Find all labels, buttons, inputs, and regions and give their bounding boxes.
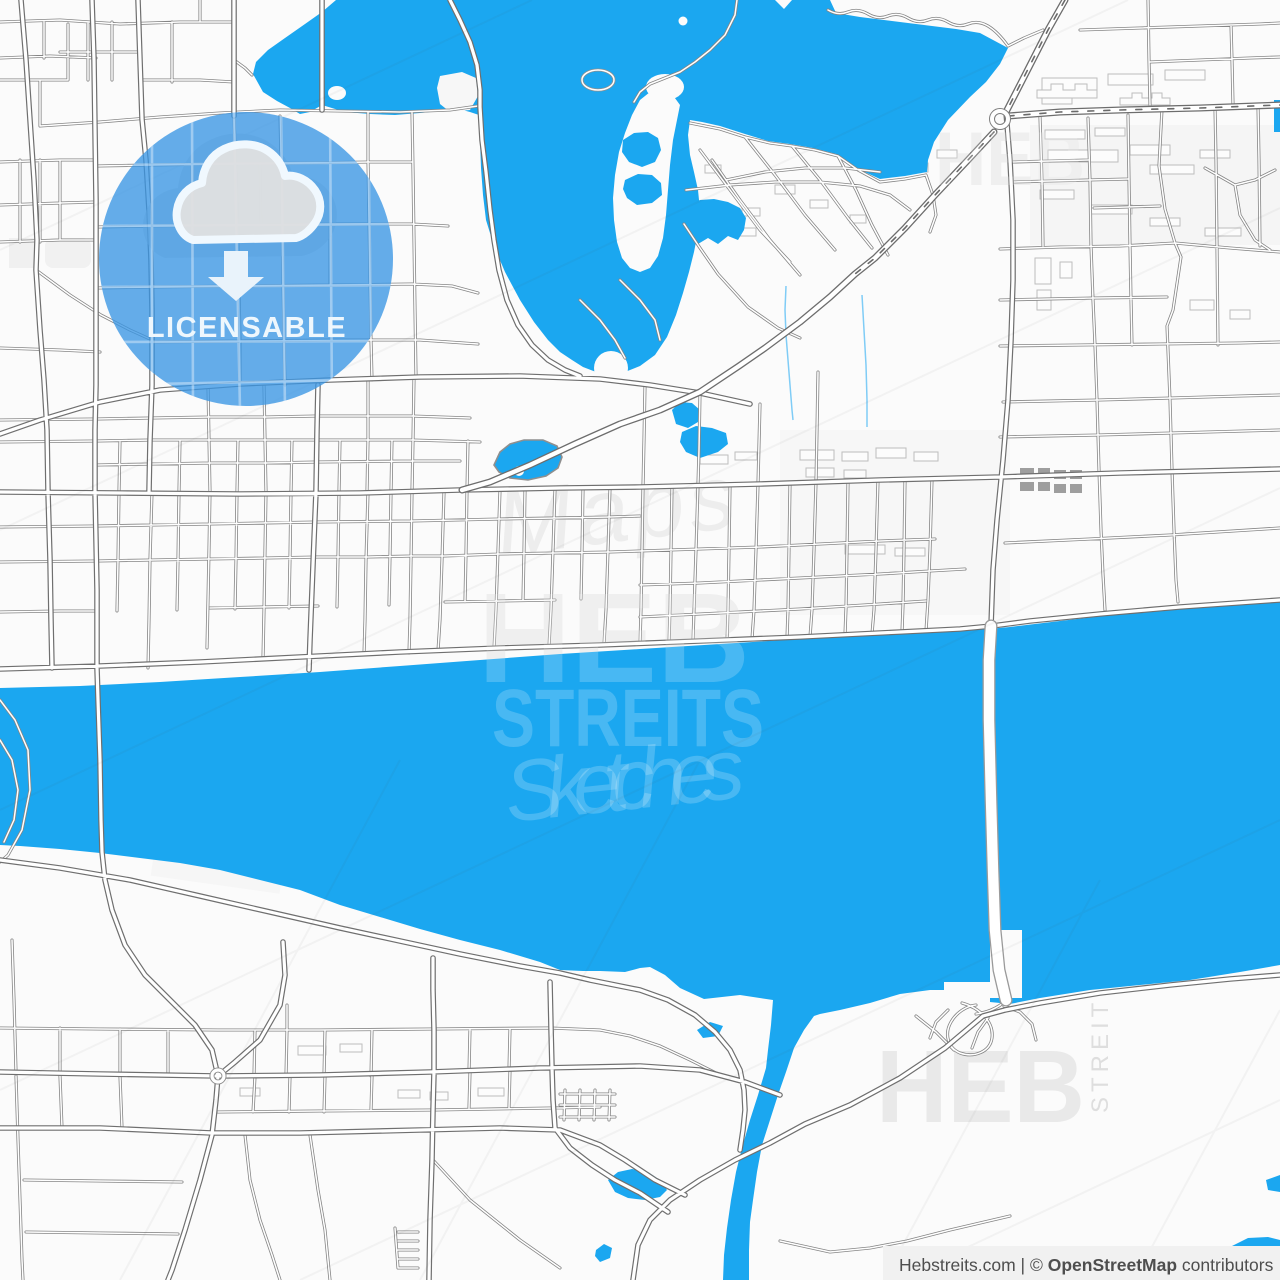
svg-text:STREIT: STREIT — [1087, 998, 1114, 1113]
svg-text:HEB: HEB — [935, 117, 1085, 202]
svg-text:Hebstreits.com | © OpenStreetM: Hebstreits.com | © OpenStreetMap contrib… — [899, 1255, 1274, 1275]
svg-text:LICENSABLE: LICENSABLE — [147, 312, 347, 344]
svg-text:HEB: HEB — [876, 1029, 1085, 1144]
